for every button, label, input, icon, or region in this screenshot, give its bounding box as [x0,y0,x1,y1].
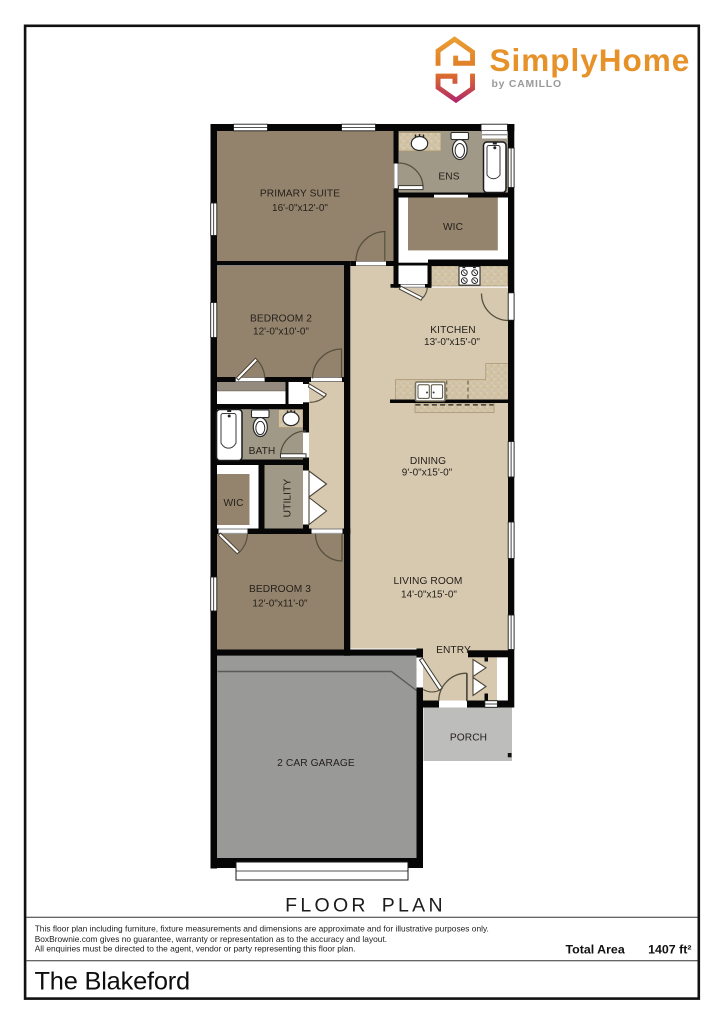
svg-text:9'-0"x15'-0": 9'-0"x15'-0" [402,468,453,479]
svg-text:SimplyHome: SimplyHome [490,42,691,78]
svg-text:The Blakeford: The Blakeford [35,968,190,996]
svg-text:LIVING ROOM: LIVING ROOM [393,576,462,587]
svg-text:BATH: BATH [249,446,276,457]
svg-text:WIC: WIC [223,498,243,509]
svg-text:1407 ft²: 1407 ft² [648,943,691,957]
svg-text:BoxBrownie.com gives no guaran: BoxBrownie.com gives no guarantee, warra… [35,934,387,944]
svg-text:12'-0"x10'-0": 12'-0"x10'-0" [253,327,309,338]
svg-text:ENTRY: ENTRY [436,645,471,656]
svg-text:This floor plan including furn: This floor plan including furniture, fix… [35,924,489,934]
svg-text:2 CAR GARAGE: 2 CAR GARAGE [277,758,355,769]
svg-text:All enquiries must be directed: All enquiries must be directed to the ag… [35,944,356,954]
svg-text:by CAMILLO: by CAMILLO [492,79,562,90]
svg-text:UTILITY: UTILITY [283,479,294,518]
svg-text:Total Area: Total Area [566,943,625,957]
svg-text:KITCHEN: KITCHEN [430,325,475,336]
svg-text:16'-0"x12'-0": 16'-0"x12'-0" [272,203,328,214]
svg-text:BEDROOM 2: BEDROOM 2 [250,314,312,325]
svg-text:DINING: DINING [410,456,446,467]
svg-text:14'-0"x15'-0": 14'-0"x15'-0" [401,590,457,601]
svg-text:BEDROOM 3: BEDROOM 3 [249,584,311,595]
svg-text:12'-0"x11'-0": 12'-0"x11'-0" [252,599,308,610]
svg-text:PORCH: PORCH [450,733,487,744]
svg-text:FLOOR PLAN: FLOOR PLAN [285,895,446,917]
svg-text:ENS: ENS [438,172,459,183]
svg-text:PRIMARY SUITE: PRIMARY SUITE [260,189,340,200]
svg-text:13'-0"x15'-0": 13'-0"x15'-0" [424,337,480,348]
svg-text:WIC: WIC [443,222,463,233]
